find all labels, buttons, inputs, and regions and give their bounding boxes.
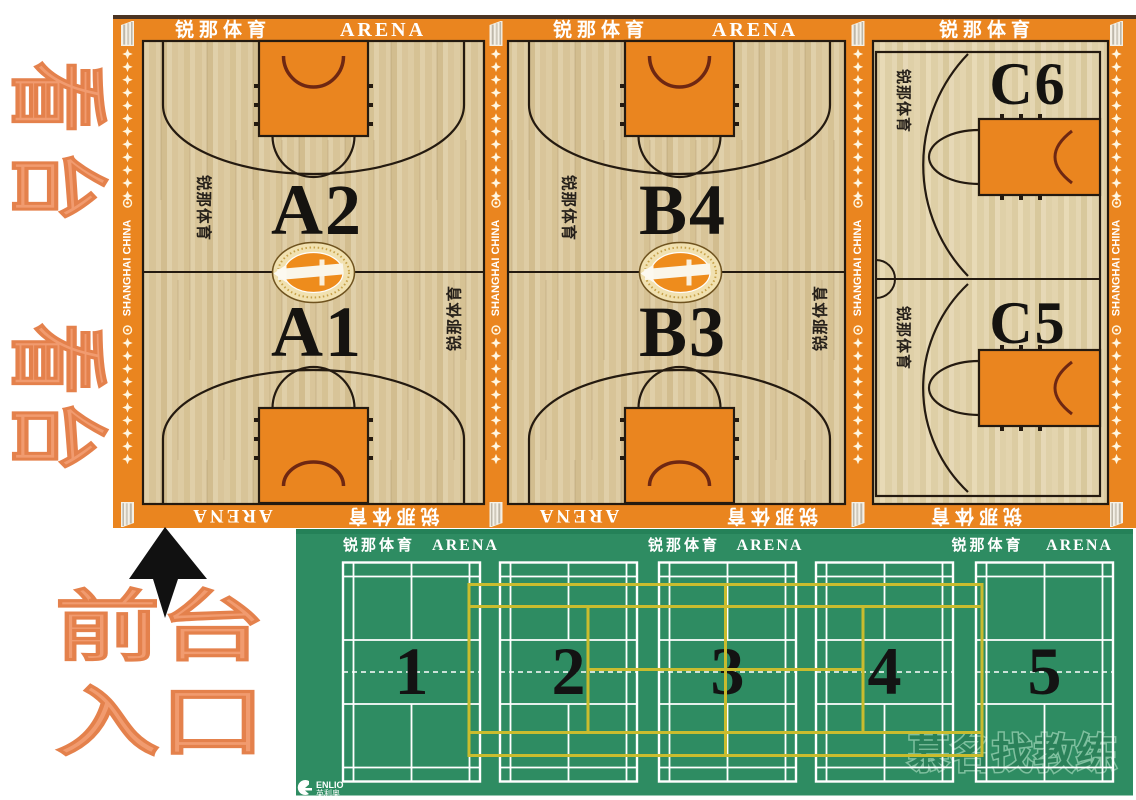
svg-text:锐那体育: 锐那体育 [175,18,271,41]
svg-text:A1: A1 [271,292,363,372]
svg-text:锐那体育: 锐那体育 [553,18,649,41]
svg-text:4: 4 [868,633,902,709]
svg-text:台: 台 [160,584,266,671]
svg-text:ARENA: ARENA [537,505,620,526]
svg-text:锐那体育: 锐那体育 [560,175,579,241]
svg-text:ARENA: ARENA [190,505,273,526]
svg-text:锐那体育: 锐那体育 [926,505,1022,528]
svg-text:锐那体育: 锐那体育 [195,175,214,241]
svg-text:锐那体育: 锐那体育 [939,18,1035,41]
svg-text:口: 口 [160,679,266,766]
svg-text:锐那体育: 锐那体育 [648,536,720,554]
svg-text:B3: B3 [639,292,727,372]
svg-text:台: 台 [0,150,111,222]
svg-text:入: 入 [55,679,161,766]
svg-text:锐那体育: 锐那体育 [951,536,1023,554]
svg-text:前: 前 [55,584,161,671]
svg-text:看: 看 [0,61,111,133]
svg-text:SHANGHAI CHINA: SHANGHAI CHINA [1111,220,1123,317]
svg-text:ARENA: ARENA [712,19,798,41]
svg-text:ARENA: ARENA [340,19,426,41]
svg-text:SHANGHAI CHINA: SHANGHAI CHINA [852,220,864,317]
svg-text:台: 台 [0,400,111,472]
svg-text:C5: C5 [989,290,1066,356]
svg-text:锐那体育: 锐那体育 [811,285,830,351]
svg-text:2: 2 [552,633,586,709]
svg-text:英利奥: 英利奥 [316,788,340,798]
svg-text:锐那体育: 锐那体育 [895,69,913,133]
svg-text:B4: B4 [639,170,727,250]
svg-text:1: 1 [395,633,429,709]
svg-text:ARENA: ARENA [737,537,804,554]
svg-text:ARENA: ARENA [1046,537,1113,554]
svg-text:锐那体育: 锐那体育 [445,285,464,351]
svg-text:A2: A2 [271,170,363,250]
svg-text:锐那体育: 锐那体育 [343,536,415,554]
svg-text:锐那体育: 锐那体育 [722,505,818,528]
svg-text:SHANGHAI CHINA: SHANGHAI CHINA [490,220,502,317]
svg-text:SHANGHAI CHINA: SHANGHAI CHINA [122,220,134,317]
svg-text:ARENA: ARENA [432,537,499,554]
svg-text:看: 看 [0,323,111,395]
svg-text:5: 5 [1028,633,1062,709]
svg-text:锐那体育: 锐那体育 [895,306,913,370]
svg-text:C6: C6 [989,51,1066,117]
svg-text:锐那体育: 锐那体育 [343,505,439,528]
